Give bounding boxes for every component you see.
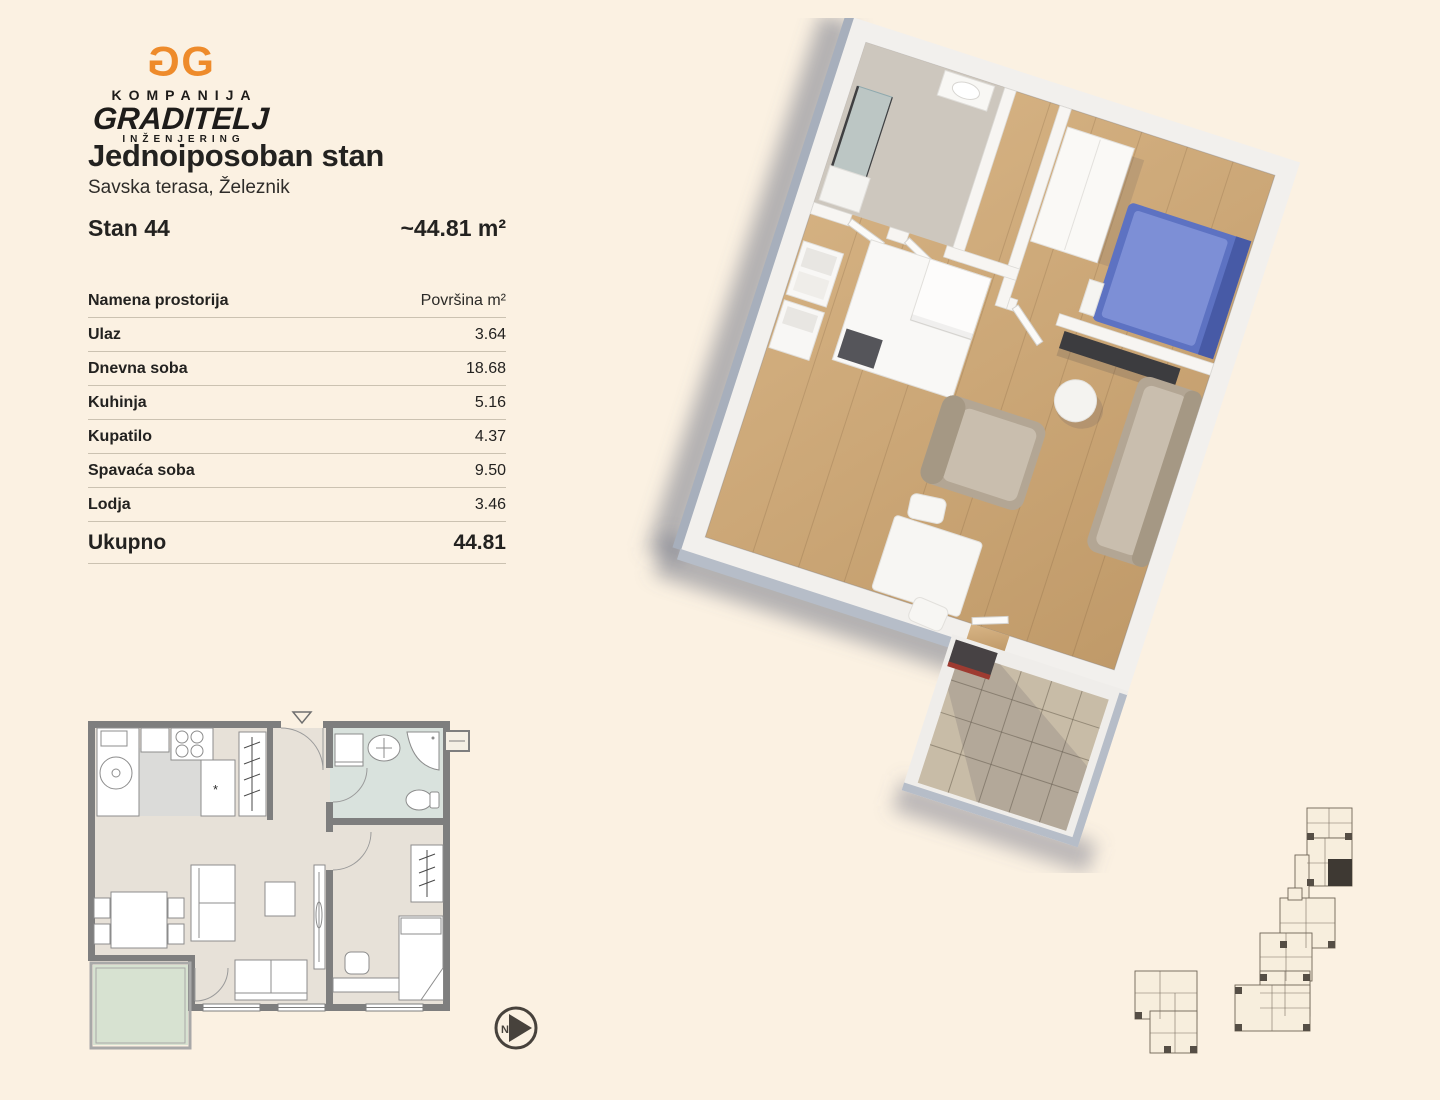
table-row: Ulaz 3.64 xyxy=(88,318,506,352)
room-area: 9.50 xyxy=(475,462,506,480)
room-name: Kupatilo xyxy=(88,428,152,446)
col-room-name: Namena prostorija xyxy=(88,292,228,310)
site-key-plan xyxy=(1120,793,1362,1068)
floorplan-2d: * xyxy=(83,710,495,1058)
room-name: Ulaz xyxy=(88,326,121,344)
north-indicator: N xyxy=(492,1004,540,1052)
building-outline-2 xyxy=(1135,971,1197,1053)
table-row: Dnevna soba 18.68 xyxy=(88,352,506,386)
room-area: 5.16 xyxy=(475,394,506,412)
tv-panel-2d xyxy=(314,865,325,969)
room-name: Spavaća soba xyxy=(88,462,195,480)
unit-number: Stan 44 xyxy=(88,215,170,242)
entrance-arrow xyxy=(293,712,311,723)
room-area: 18.68 xyxy=(466,360,506,378)
table-row: Kupatilo 4.37 xyxy=(88,420,506,454)
logo-monogram-icon: G G xyxy=(126,40,235,80)
table-row: Spavaća soba 9.50 xyxy=(88,454,506,488)
room-area: 4.37 xyxy=(475,428,506,446)
compass-letter: N xyxy=(501,1024,509,1036)
room-area-table: Namena prostorija Površina m² Ulaz 3.64 … xyxy=(88,284,506,564)
room-name: Lodja xyxy=(88,496,131,514)
loggia-floor xyxy=(93,965,188,1045)
table-row: Kuhinja 5.16 xyxy=(88,386,506,420)
page-title: Jednoiposoban stan xyxy=(88,138,384,174)
room-area: 3.64 xyxy=(475,326,506,344)
location-subtitle: Savska terasa, Železnik xyxy=(88,177,290,199)
windows xyxy=(203,1004,423,1011)
table-row: Lodja 3.46 xyxy=(88,488,506,522)
vent-shaft xyxy=(445,731,469,751)
dishwasher-mark: * xyxy=(213,782,218,797)
col-area: Površina m² xyxy=(421,292,506,310)
highlighted-unit xyxy=(1328,859,1352,886)
unit-summary-row: Stan 44 ~44.81 m² xyxy=(88,215,506,242)
room-area: 3.46 xyxy=(475,496,506,514)
room-name: Kuhinja xyxy=(88,394,147,412)
svg-text:G: G xyxy=(148,40,181,80)
floorplan-3d-render xyxy=(575,18,1365,873)
north-arrow-icon xyxy=(509,1014,532,1042)
total-area: 44.81 xyxy=(453,531,506,555)
room-name: Dnevna soba xyxy=(88,360,188,378)
unit-total-area: ~44.81 m² xyxy=(401,215,507,242)
total-label: Ukupno xyxy=(88,531,166,555)
table-total-row: Ukupno 44.81 xyxy=(88,522,506,564)
svg-text:G: G xyxy=(182,40,215,80)
hall-wardrobe xyxy=(239,732,266,816)
table-header-row: Namena prostorija Površina m² xyxy=(88,284,506,318)
building-outline xyxy=(1235,808,1352,1031)
logo-brand-word: GRADITELJ xyxy=(77,103,285,134)
company-logo: G G KOMPANIJA GRADITELJ INŽENJERING xyxy=(78,40,284,145)
